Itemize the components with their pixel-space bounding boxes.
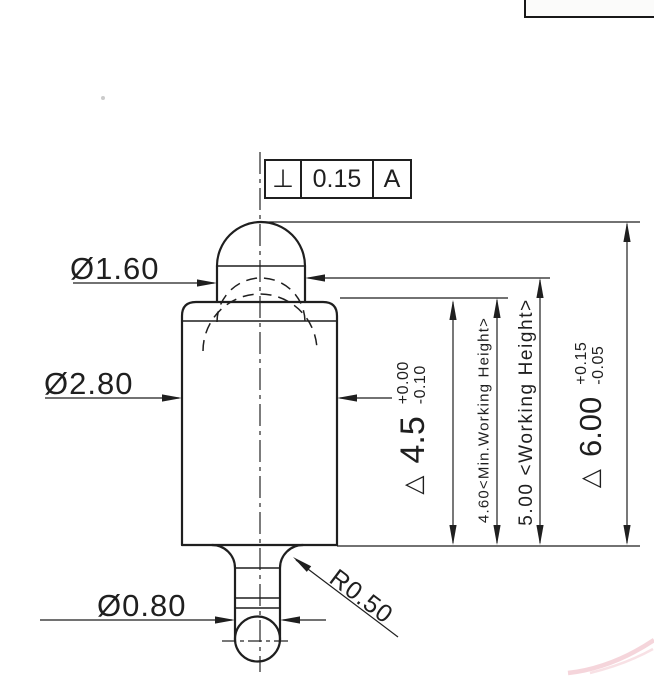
datum-reference: A (372, 161, 410, 197)
overall-tol-minus: -0.05 (591, 342, 608, 385)
overall-height-tolerance: +0.15 -0.05 (574, 342, 608, 385)
working-height-dim: 5.00 <Working Height> (516, 298, 538, 526)
min-working-height-dim: 4.60<Min.Working Height> (476, 317, 493, 523)
stroke-dim: △ 4.5 +0.00 -0.10 (396, 361, 430, 494)
drawing-sheet: ⊥ 0.15 A Ø1.60 Ø2.80 Ø0.80 R0.50 △ 4.5 +… (0, 0, 654, 678)
perpendicularity-icon: ⊥ (266, 161, 300, 197)
stroke-tol-plus: +0.00 (396, 361, 413, 404)
paper-speck (101, 96, 105, 100)
stroke-tolerance: +0.00 -0.10 (396, 361, 430, 404)
dia-tail-dim: Ø0.80 (97, 588, 186, 624)
overall-tol-plus: +0.15 (574, 342, 591, 385)
part-drawing-geometry (0, 0, 654, 678)
dia-body-dim: Ø2.80 (44, 366, 133, 402)
tolerance-value: 0.15 (300, 161, 372, 197)
overall-height-dim: △ 6.00 +0.15 -0.05 (574, 342, 608, 489)
overall-height-value: 6.00 (576, 397, 607, 457)
title-block-fragment (524, 0, 654, 18)
stroke-value: 4.5 (396, 416, 430, 463)
critical-flag-icon: △ (579, 469, 604, 488)
stroke-tol-minus: -0.10 (413, 361, 430, 404)
working-height-label: 5.00 <Working Height> (516, 298, 538, 526)
centerlines (222, 152, 292, 672)
feature-control-frame: ⊥ 0.15 A (264, 159, 412, 199)
critical-flag-icon: △ (401, 476, 426, 495)
scan-smudge (568, 640, 654, 673)
min-working-height-label: 4.60<Min.Working Height> (476, 317, 493, 523)
dia-plunger-dim: Ø1.60 (70, 251, 159, 287)
